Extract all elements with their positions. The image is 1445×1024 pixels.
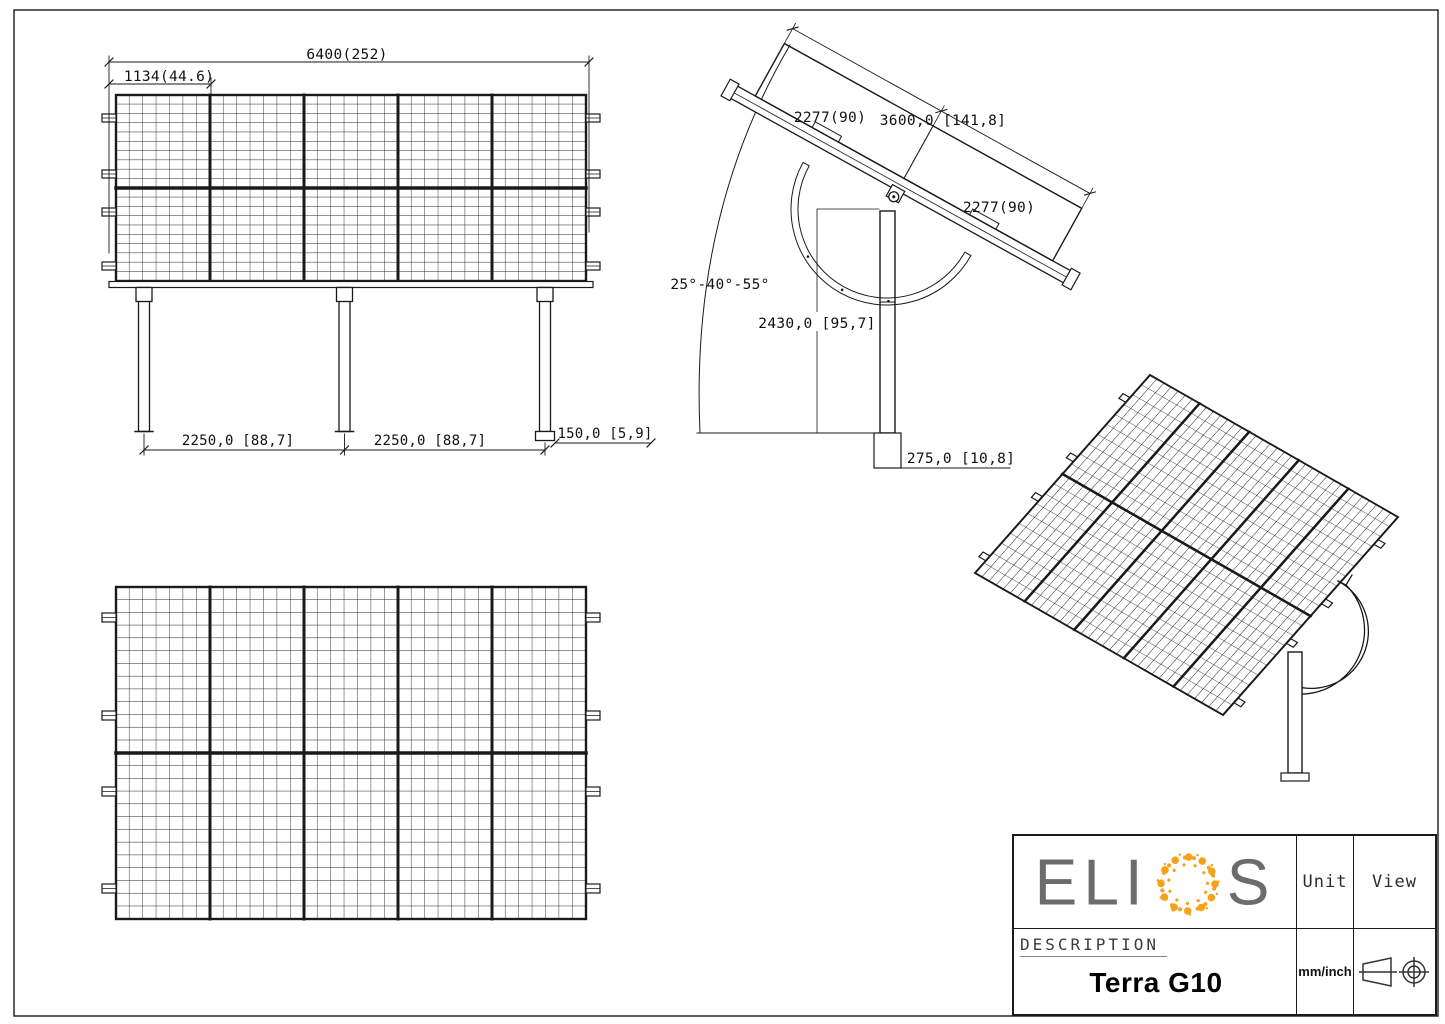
dim-base-plate-label: 150,0 [5,9] <box>558 426 653 442</box>
elios-sun-icon <box>1151 844 1225 920</box>
third-angle-projection-icon <box>1359 955 1431 989</box>
tilt-angle-range-label: 25°-40°-55° <box>670 277 769 293</box>
dim-total-width-label: 6400(252) <box>306 47 387 63</box>
elios-logo: ELI S <box>1035 844 1276 920</box>
dim-embed-depth-label: 275,0 [10,8] <box>907 451 1015 467</box>
product-name: Terra G10 <box>1089 967 1222 999</box>
title-block: ELI S Unit View DESCRIPTION Terra G10 mm… <box>1012 834 1437 1016</box>
side-post <box>880 211 895 433</box>
side-elevation-view: 2277(90) 3600,0 [141,8] 2277(90) 25°-40°… <box>666 9 1120 468</box>
brand-text-right: S <box>1227 849 1276 914</box>
drawing-sheet: 6400(252) 1134(44.6) 2250,0 [88,7] 2250,… <box>0 0 1445 1024</box>
description-cell: DESCRIPTION Terra G10 <box>1014 928 1296 1014</box>
unit-header-cell: Unit <box>1296 836 1353 928</box>
unit-label: Unit <box>1303 872 1348 892</box>
iso-panel-array <box>968 371 1405 719</box>
dim-span-right-label: 2250,0 [88,7] <box>374 433 486 449</box>
front-elevation-view: 6400(252) 1134(44.6) 2250,0 [88,7] 2250,… <box>102 47 655 455</box>
view-header-cell: View <box>1353 836 1435 928</box>
brand-cell: ELI S <box>1014 836 1296 928</box>
brand-text-left: ELI <box>1035 849 1149 914</box>
isometric-view <box>968 371 1405 781</box>
iso-base-plate <box>1281 773 1309 781</box>
front-posts <box>135 288 555 441</box>
plan-view <box>102 587 600 919</box>
iso-post <box>1288 652 1302 773</box>
view-label: View <box>1372 872 1417 892</box>
side-foundation <box>874 433 901 468</box>
dim-module-upper-label: 2277(90) <box>794 110 866 126</box>
dim-total-length-label: 3600,0 [141,8] <box>880 113 1006 129</box>
dim-module-width-label: 1134(44.6) <box>124 69 214 85</box>
description-label: DESCRIPTION <box>1020 935 1167 957</box>
dim-post-height-label: 2430,0 [95,7] <box>758 316 875 332</box>
unit-value-cell: mm/inch <box>1296 928 1353 1014</box>
dim-span-left-label: 2250,0 [88,7] <box>182 433 294 449</box>
front-torque-rail <box>109 282 593 288</box>
projection-cell <box>1353 928 1435 1014</box>
dim-module-lower-label: 2277(90) <box>963 200 1035 216</box>
unit-value: mm/inch <box>1298 964 1351 979</box>
front-base-plate <box>536 432 555 441</box>
